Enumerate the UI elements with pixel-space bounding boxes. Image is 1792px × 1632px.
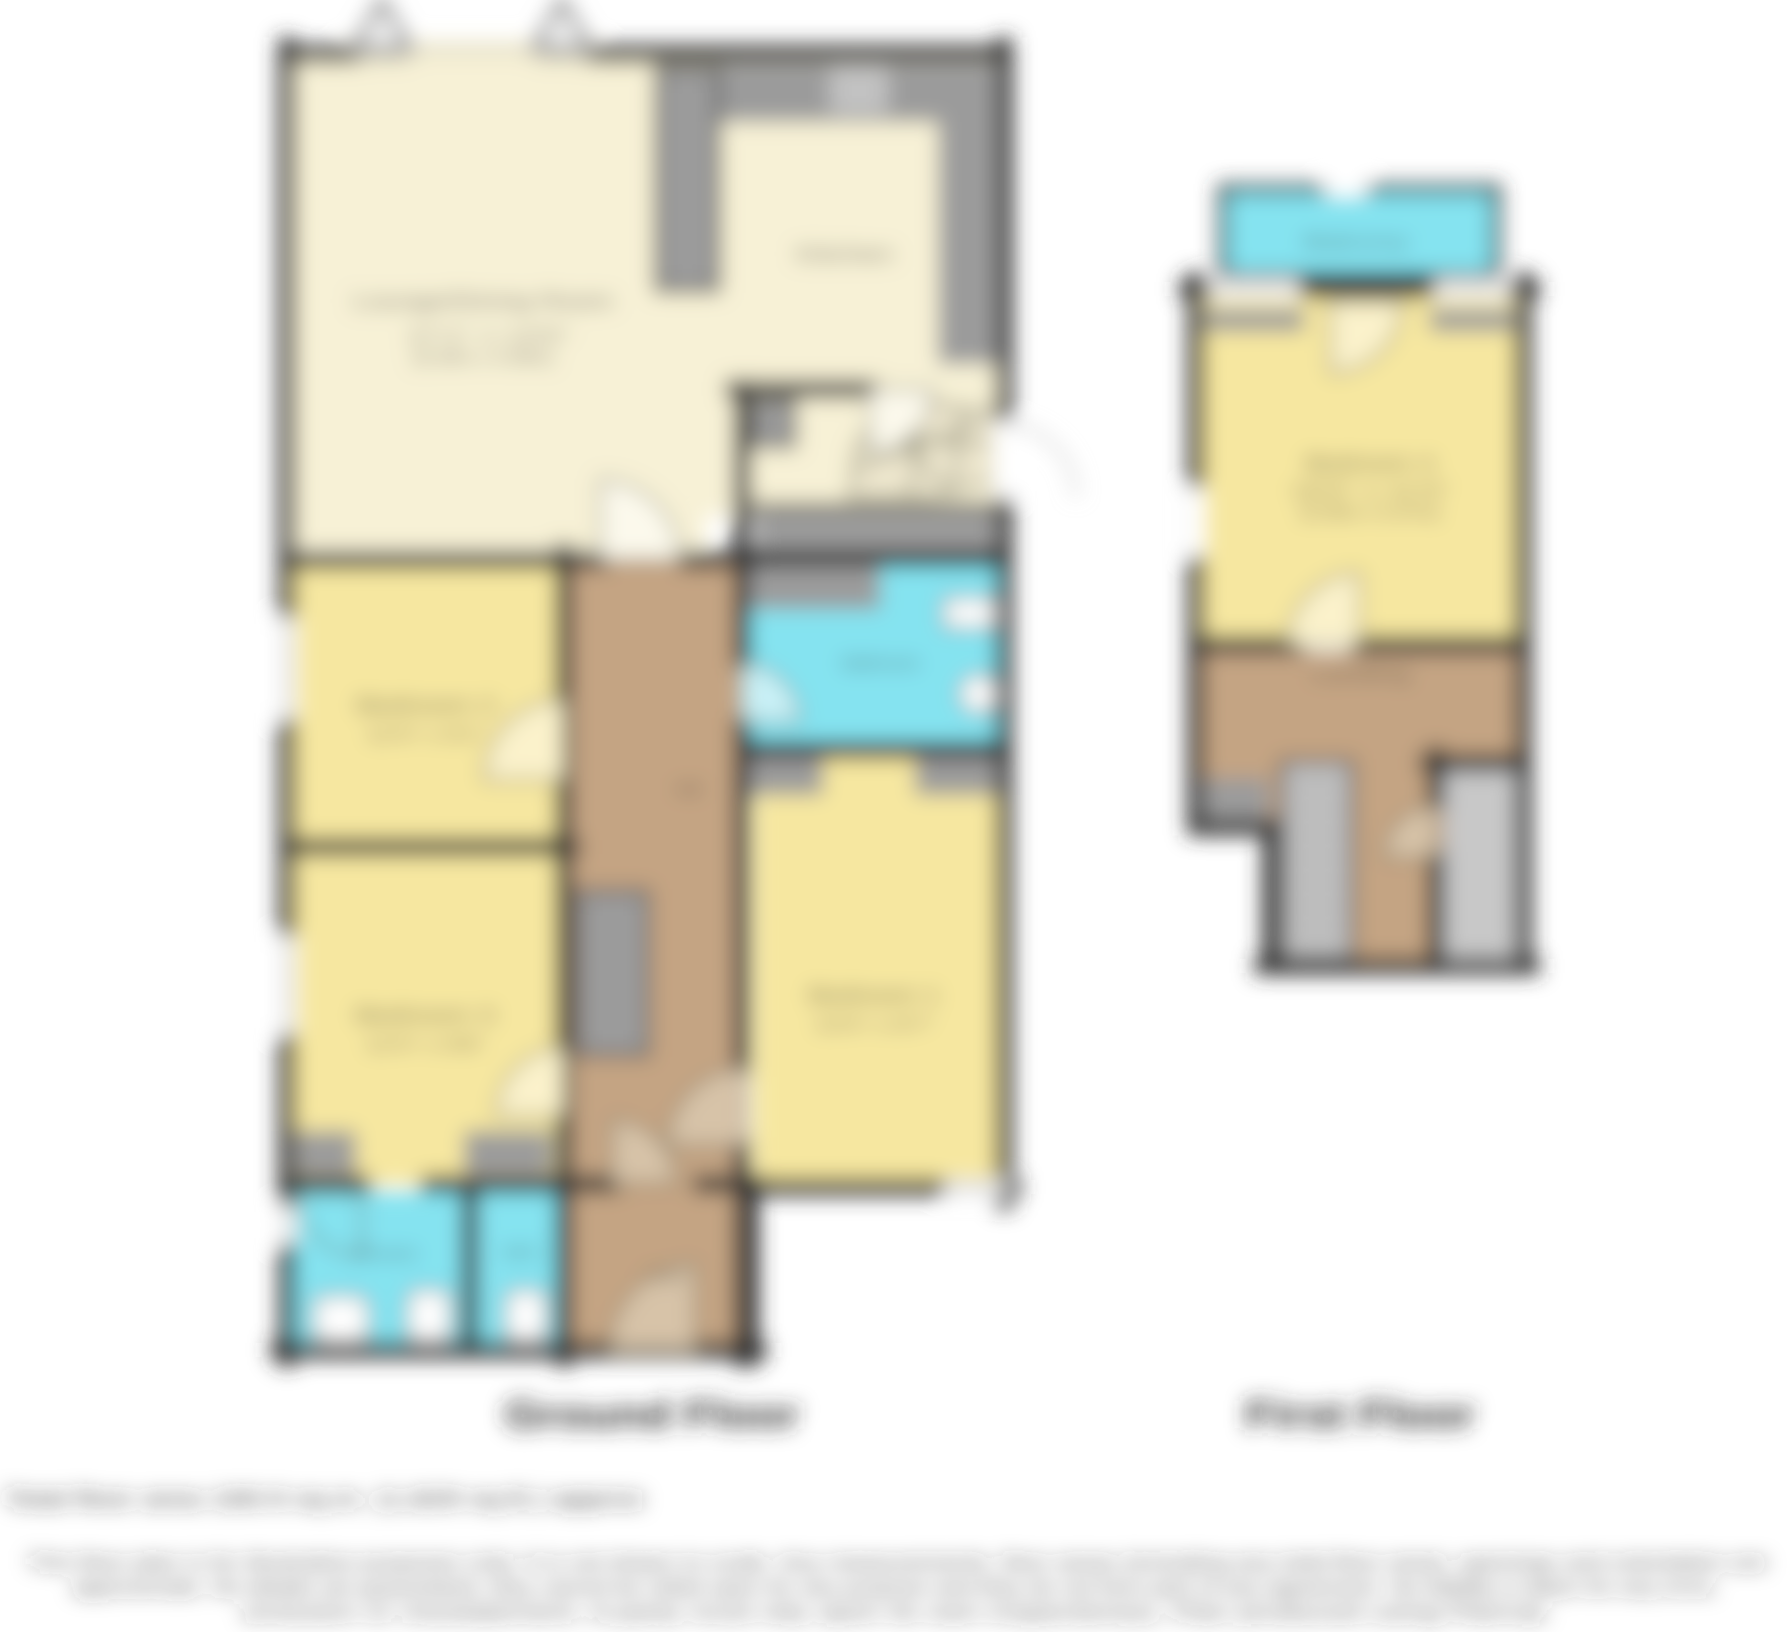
svg-text:Landing: Landing: [1312, 666, 1410, 683]
svg-text:approximate. No details are gu: approximate. No details are guaranteed, …: [73, 1578, 1718, 1597]
svg-text:Hall: Hall: [675, 781, 701, 798]
svg-text:This floor plan is for illustr: This floor plan is for illustrative purp…: [27, 1553, 1767, 1572]
svg-text:16'5" x 11'5": 16'5" x 11'5": [1290, 481, 1450, 500]
svg-text:Bathroom: Bathroom: [842, 655, 920, 672]
svg-text:Shower: Shower: [353, 1245, 419, 1261]
svg-text:Bedroom 3: Bedroom 3: [355, 1005, 495, 1027]
svg-text:Bedroom 1: Bedroom 1: [808, 985, 940, 1007]
svg-text:Bedroom 2: Bedroom 2: [356, 695, 496, 717]
svg-text:Lounge/Dining Room: Lounge/Dining Room: [353, 291, 614, 313]
svg-text:Kitchen: Kitchen: [796, 244, 894, 266]
svg-text:(8.26m x 4.09m): (8.26m x 4.09m): [413, 348, 554, 367]
svg-text:27'1" x 13'5": 27'1" x 13'5": [408, 326, 571, 345]
svg-text:Balcony: Balcony: [1304, 234, 1409, 251]
svg-text:(5.00m x 3.47m): (5.00m x 3.47m): [1300, 503, 1440, 522]
svg-text:Porch: Porch: [645, 1268, 684, 1285]
svg-text:First Floor: First Floor: [1245, 1393, 1475, 1437]
svg-text:Bedroom 4: Bedroom 4: [1305, 453, 1435, 475]
svg-text:WC: WC: [502, 1244, 542, 1260]
svg-text:Ground Floor: Ground Floor: [505, 1393, 800, 1437]
svg-text:13'4" x 9'7": 13'4" x 9'7": [814, 1015, 934, 1034]
svg-text:12'4" x 9'1": 12'4" x 9'1": [366, 725, 486, 744]
svg-text:12'4" x 9'8": 12'4" x 9'8": [365, 1035, 485, 1054]
svg-text:omission or misstatement. A pa: omission or misstatement. A party must r…: [242, 1603, 1552, 1622]
svg-text:Total floor area 169.9 sq.m. (: Total floor area 169.9 sq.m. (1,829 sq.f…: [4, 1488, 645, 1511]
